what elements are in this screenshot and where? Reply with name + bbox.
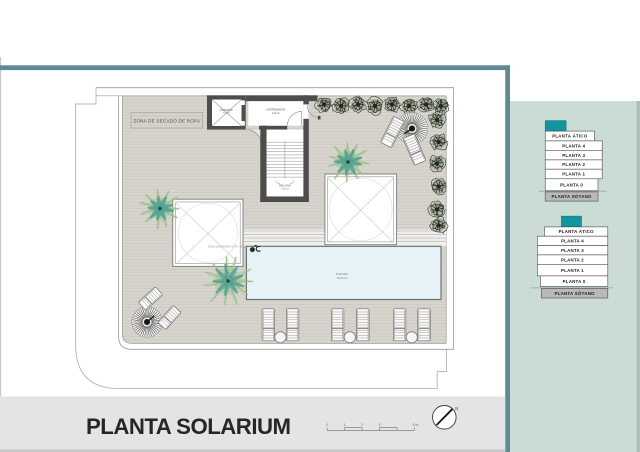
svg-text:PLANTA 3: PLANTA 3	[561, 248, 584, 253]
svg-text:2.50 m²: 2.50 m²	[223, 112, 230, 115]
svg-text:1: 1	[344, 423, 346, 427]
svg-text:0: 0	[326, 423, 328, 427]
svg-text:PLANTA SÓTANO: PLANTA SÓTANO	[551, 194, 592, 199]
svg-text:4.10 m²: 4.10 m²	[272, 112, 280, 115]
svg-text:N: N	[455, 406, 458, 411]
svg-text:22.60 m²: 22.60 m²	[337, 276, 348, 280]
svg-text:PLANTA 2: PLANTA 2	[562, 162, 585, 167]
svg-text:PLANTA 1: PLANTA 1	[562, 172, 585, 177]
svg-text:PISCINA: PISCINA	[336, 272, 349, 276]
svg-text:PLANTA 1: PLANTA 1	[561, 268, 584, 273]
svg-text:PLANTA 0: PLANTA 0	[563, 279, 586, 284]
svg-text:PLANTA SOLARIUM: PLANTA SOLARIUM	[86, 414, 291, 439]
svg-text:DISTRIBUIDOR: DISTRIBUIDOR	[267, 107, 286, 111]
svg-text:PLANTA 0: PLANTA 0	[560, 182, 583, 187]
svg-text:7.00 m²: 7.00 m²	[281, 187, 289, 190]
svg-text:PLANTA 2: PLANTA 2	[561, 257, 584, 262]
svg-text:5 m: 5 m	[413, 423, 419, 427]
svg-text:RELLANO: RELLANO	[279, 184, 291, 187]
svg-text:PLANTA 4: PLANTA 4	[562, 143, 585, 148]
svg-text:PLANTA SÓTANO: PLANTA SÓTANO	[554, 291, 595, 296]
svg-text:PLANTA ÁTICO: PLANTA ÁTICO	[559, 229, 595, 234]
svg-text:3: 3	[379, 423, 381, 427]
svg-text:PLANTA ÁTICO: PLANTA ÁTICO	[552, 134, 588, 139]
svg-text:ZONA SOLARIUM COTA +35.15 m: ZONA SOLARIUM COTA +35.15 m	[208, 245, 250, 248]
svg-text:PLANTA 3: PLANTA 3	[562, 153, 585, 158]
svg-text:ASCENSOR: ASCENSOR	[220, 109, 233, 112]
svg-text:PLANTA 4: PLANTA 4	[561, 239, 584, 244]
svg-text:2: 2	[361, 423, 363, 427]
svg-text:ZONA DE SECADO DE ROPA: ZONA DE SECADO DE ROPA	[133, 119, 201, 124]
